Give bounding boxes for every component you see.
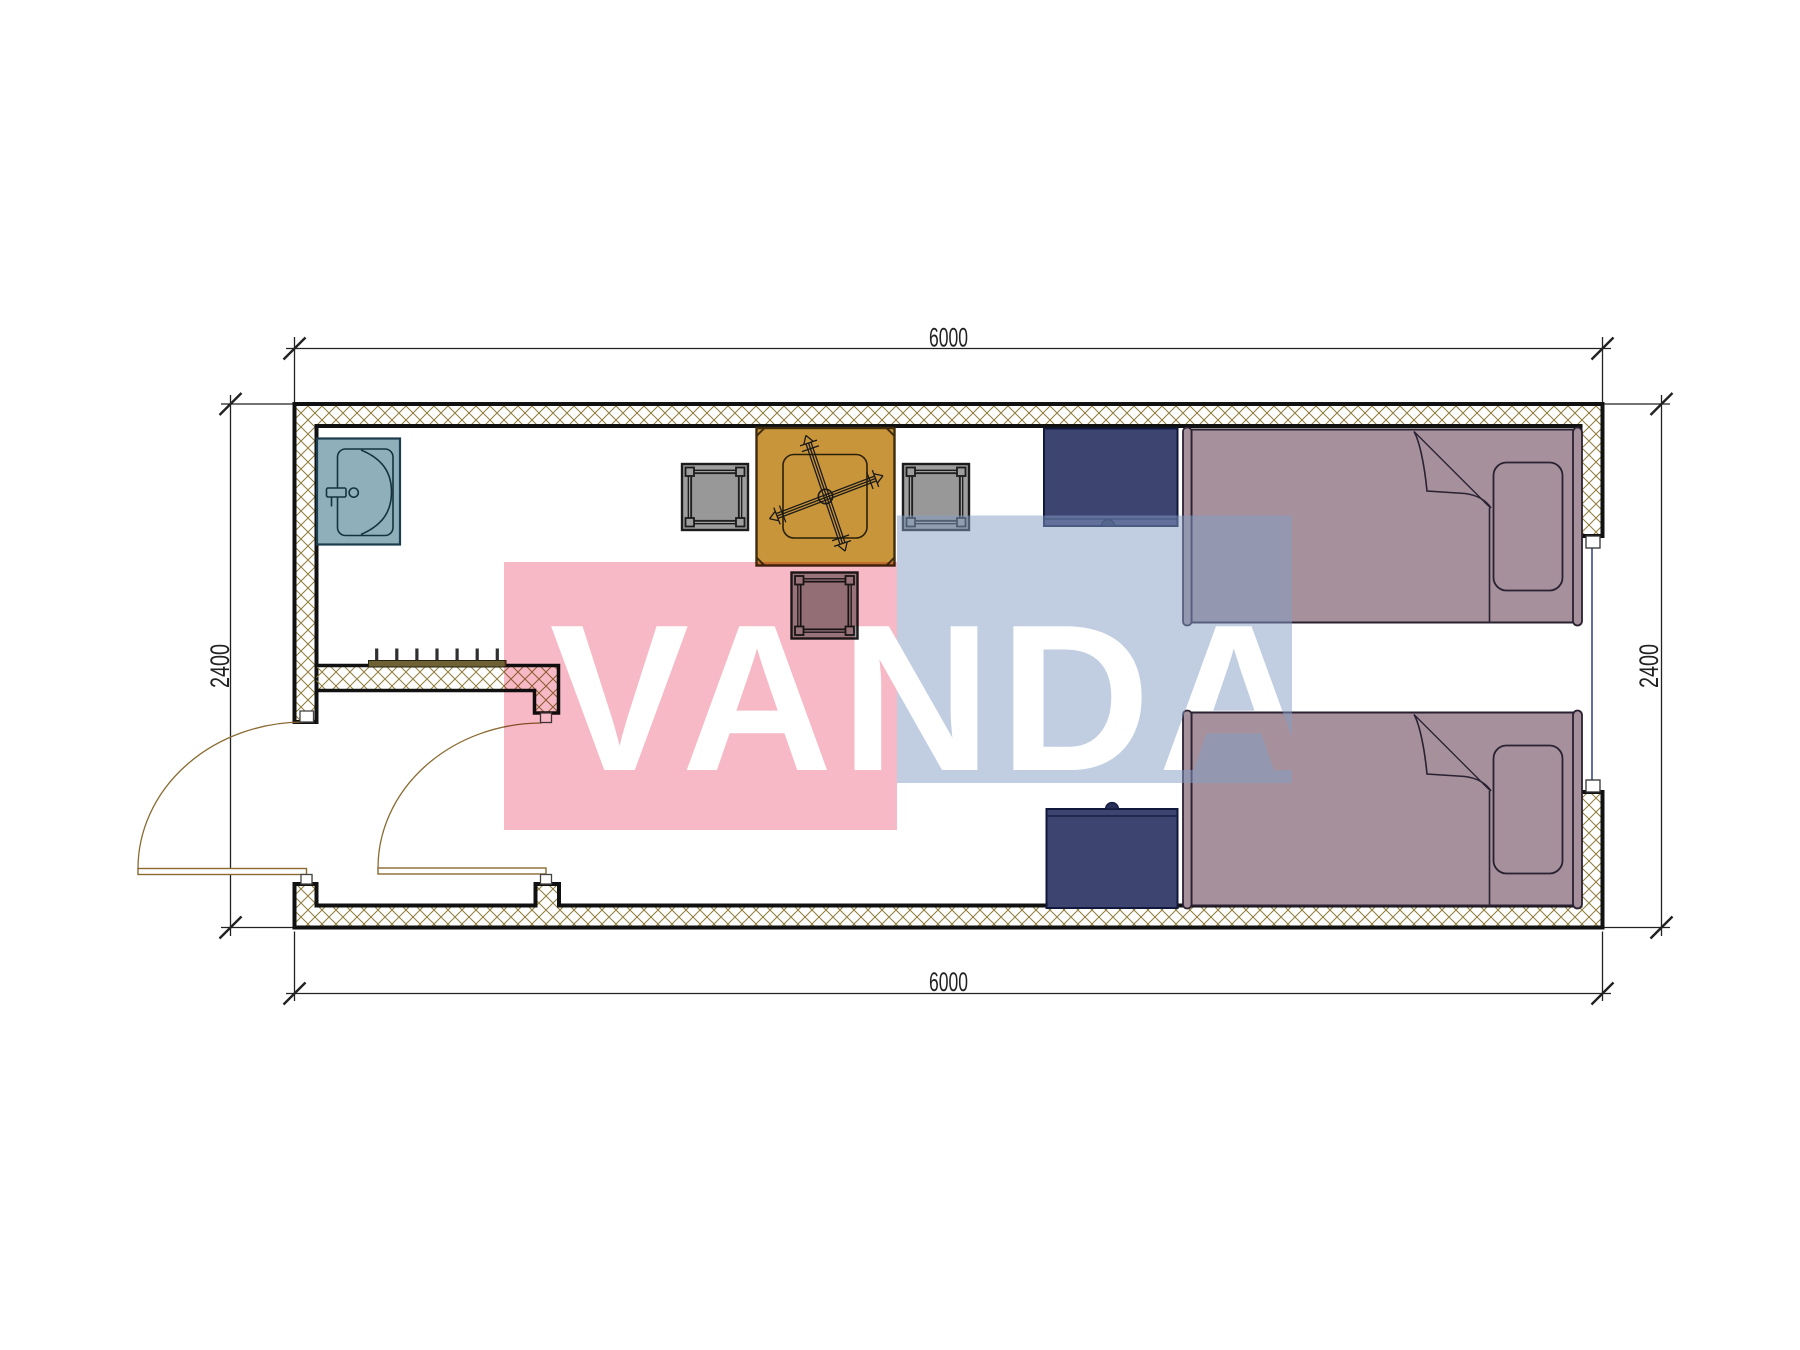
svg-text:6000: 6000 <box>929 323 968 353</box>
svg-text:2400: 2400 <box>205 644 235 688</box>
svg-text:2400: 2400 <box>1634 644 1664 688</box>
svg-text:6000: 6000 <box>929 967 968 997</box>
